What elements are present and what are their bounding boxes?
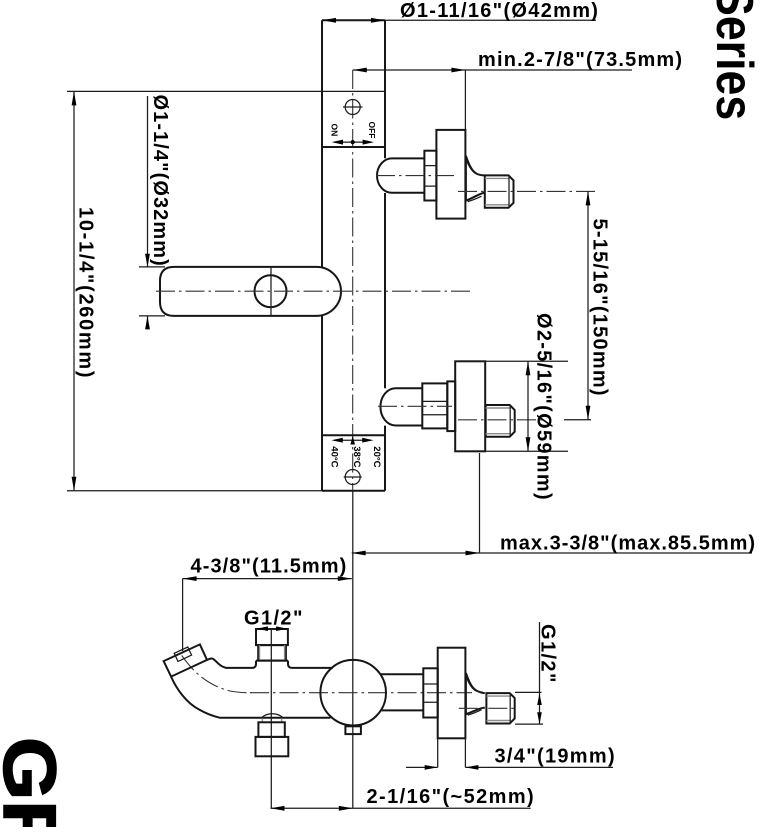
- svg-text:20°C: 20°C: [371, 446, 382, 467]
- svg-text:Ø1-11/16"(Ø42mm): Ø1-11/16"(Ø42mm): [400, 0, 599, 22]
- svg-text:38°C: 38°C: [351, 446, 362, 467]
- svg-text:10-1/4"(260mm): 10-1/4"(260mm): [75, 207, 97, 379]
- svg-text:Ø2-5/16"(Ø59mm): Ø2-5/16"(Ø59mm): [533, 313, 555, 501]
- svg-text:2-1/16"(~52mm): 2-1/16"(~52mm): [367, 786, 536, 808]
- svg-text:Ø1-1/4"(Ø32mm): Ø1-1/4"(Ø32mm): [149, 95, 171, 267]
- svg-text:ON: ON: [330, 124, 340, 137]
- svg-text:4-3/8"(11.5mm): 4-3/8"(11.5mm): [191, 556, 348, 578]
- svg-text:max.3-3/8"(max.85.5mm): max.3-3/8"(max.85.5mm): [500, 533, 756, 555]
- svg-text:min.2-7/8"(73.5mm): min.2-7/8"(73.5mm): [478, 49, 683, 71]
- svg-text:GR: GR: [0, 737, 70, 827]
- svg-text:Series: Series: [705, 0, 763, 120]
- svg-text:OFF: OFF: [367, 122, 377, 139]
- svg-text:G1/2": G1/2": [244, 608, 304, 630]
- svg-text:40°C: 40°C: [329, 446, 340, 467]
- svg-text:3/4"(19mm): 3/4"(19mm): [495, 746, 616, 768]
- svg-text:5-15/16"(150mm): 5-15/16"(150mm): [589, 219, 611, 397]
